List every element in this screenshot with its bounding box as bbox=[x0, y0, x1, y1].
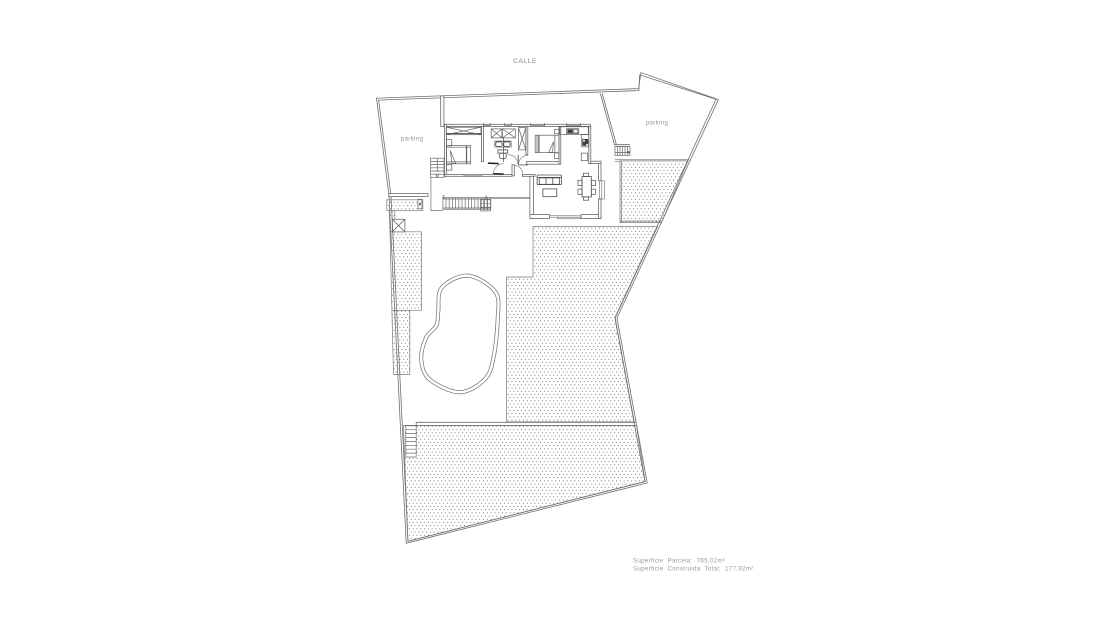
svg-text:parking: parking bbox=[401, 135, 424, 142]
svg-text:CALLE: CALLE bbox=[513, 58, 537, 65]
svg-text:Superficie Parcela: 765,02m²: Superficie Parcela: 765,02m² bbox=[633, 558, 725, 565]
svg-text:parking: parking bbox=[646, 119, 669, 126]
svg-text:Superficie Construida Total:: Superficie Construida Total: 177,92m² bbox=[633, 565, 754, 572]
